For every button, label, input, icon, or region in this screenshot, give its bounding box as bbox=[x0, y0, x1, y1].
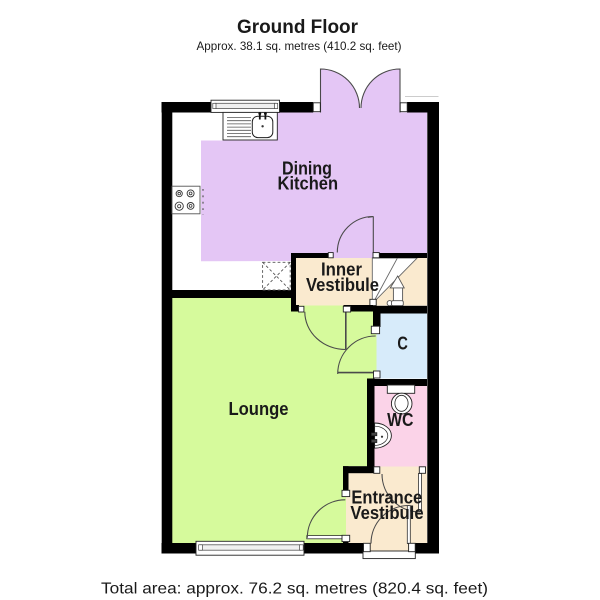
svg-text:Lounge: Lounge bbox=[229, 398, 289, 419]
svg-text:Vestibule: Vestibule bbox=[350, 502, 423, 523]
svg-text:Ground Floor: Ground Floor bbox=[237, 17, 359, 38]
svg-text:Vestibule: Vestibule bbox=[306, 274, 379, 295]
svg-text:WC: WC bbox=[387, 409, 413, 430]
svg-text:Total area: approx. 76.2 sq. m: Total area: approx. 76.2 sq. metres (820… bbox=[101, 580, 488, 597]
svg-text:C: C bbox=[397, 333, 408, 354]
svg-text:Kitchen: Kitchen bbox=[278, 173, 339, 194]
svg-text:Approx. 38.1 sq. metres (410.2: Approx. 38.1 sq. metres (410.2 sq. feet) bbox=[197, 39, 402, 53]
